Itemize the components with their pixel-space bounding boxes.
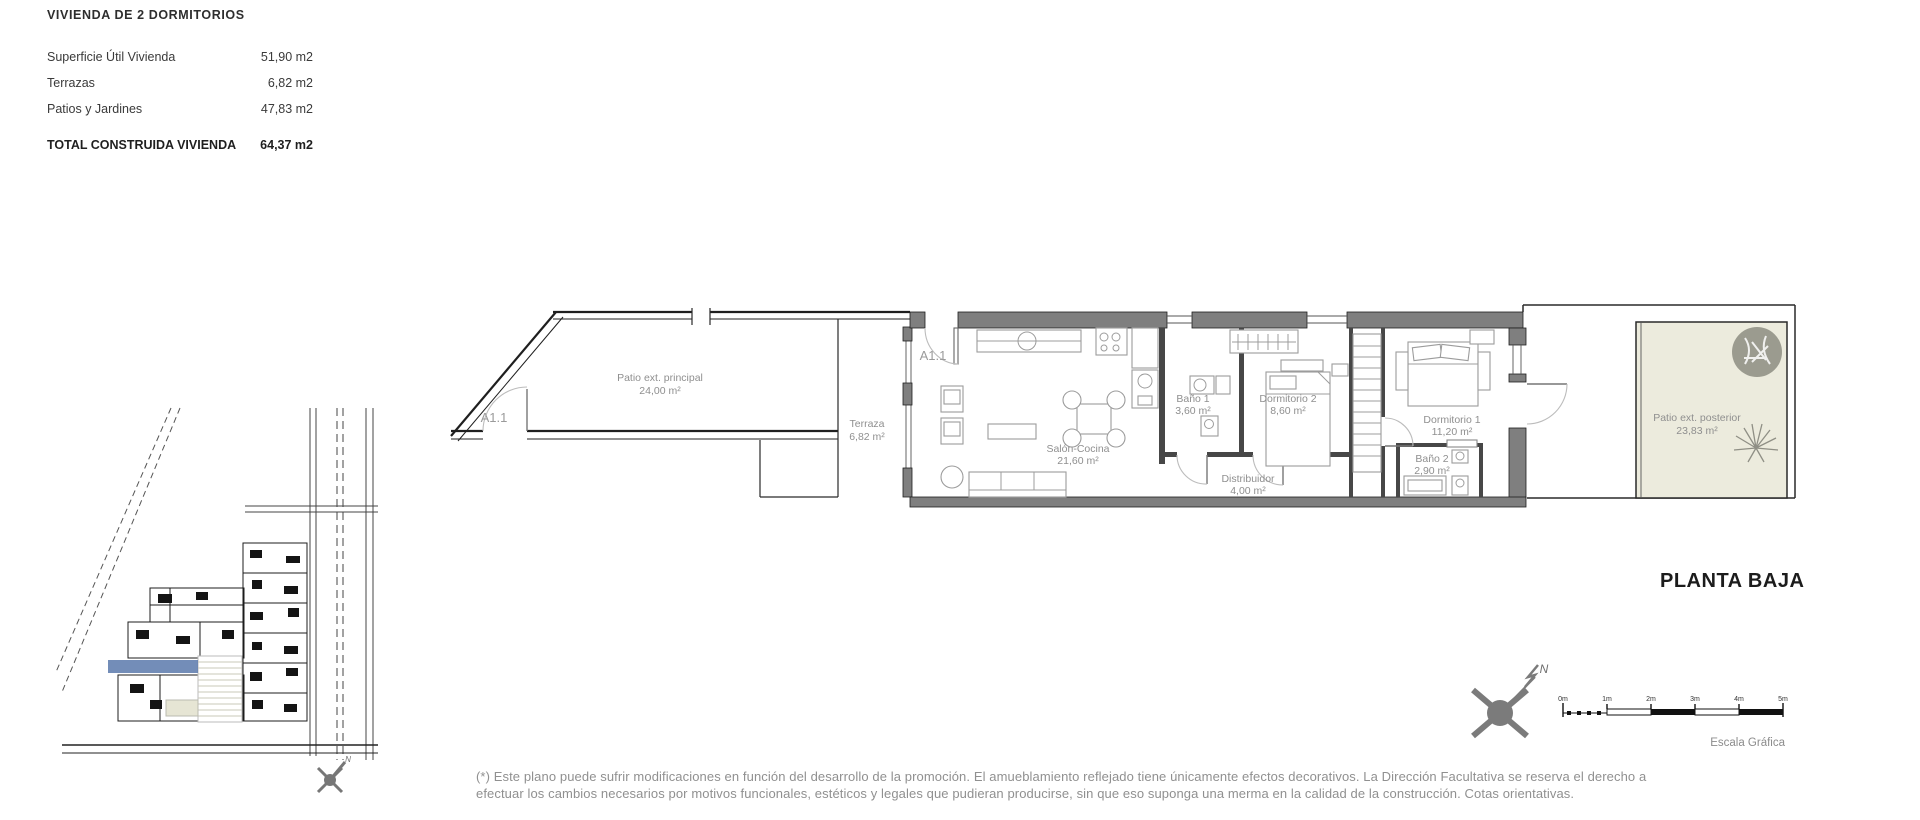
- svg-text:8,60 m²: 8,60 m²: [1270, 405, 1306, 417]
- svg-text:Patio ext. posterior: Patio ext. posterior: [1653, 412, 1741, 424]
- svg-text:4,00 m²: 4,00 m²: [1230, 485, 1266, 497]
- svg-text:Distribuidor: Distribuidor: [1221, 473, 1275, 485]
- svg-text:Terraza: Terraza: [849, 418, 884, 430]
- row-label: Patios y Jardines: [47, 102, 142, 116]
- kitchen-counter: [977, 330, 1081, 352]
- cooktop-icon: [1096, 328, 1127, 355]
- svg-text:3,60 m²: 3,60 m²: [1175, 405, 1211, 417]
- bedroom1-furniture: [1396, 330, 1494, 406]
- svg-text:3m: 3m: [1690, 696, 1700, 703]
- site-key-plan: N: [55, 405, 385, 820]
- room-label-patio-principal: Patio ext. principal 24,00 m²: [617, 372, 703, 397]
- row-value: 47,83 m2: [261, 102, 313, 116]
- unit-label-patio: A1.1: [481, 410, 508, 425]
- row-value: 51,90 m2: [261, 50, 313, 64]
- unit-label-entrance: A1.1: [920, 348, 947, 363]
- total-label: TOTAL CONSTRUIDA VIVIENDA: [47, 138, 236, 152]
- svg-text:Dormitorio 1: Dormitorio 1: [1423, 414, 1480, 426]
- kitchen-column: [1132, 328, 1158, 408]
- svg-text:0m: 0m: [1558, 696, 1568, 703]
- disclaimer-footnote: (*) Este plano puede sufrir modificacion…: [476, 768, 1776, 802]
- svg-text:Baño 1: Baño 1: [1176, 393, 1209, 405]
- tree-icon: [1732, 327, 1782, 377]
- wardrobe-icon: [1353, 334, 1381, 472]
- svg-text:1m: 1m: [1602, 696, 1612, 703]
- row-value: 6,82 m2: [268, 76, 313, 90]
- svg-text:2m: 2m: [1646, 696, 1656, 703]
- main-floor-plan: A1.1 A1.1: [360, 250, 1800, 520]
- terraza-walls: [838, 319, 912, 497]
- svg-text:Salón-Cocina: Salón-Cocina: [1046, 443, 1109, 455]
- patio-principal-walls: [451, 308, 910, 497]
- compass-north-label: N: [1540, 662, 1549, 676]
- dining-table: [1063, 391, 1125, 447]
- summary-title: VIVIENDA DE 2 DORMITORIOS: [47, 8, 313, 22]
- svg-text:23,83 m²: 23,83 m²: [1676, 425, 1718, 437]
- svg-text:21,60 m²: 21,60 m²: [1057, 455, 1099, 467]
- highlighted-unit: [108, 660, 198, 673]
- svg-text:Baño 2: Baño 2: [1415, 453, 1448, 465]
- scale-bar: 0m 1m 2m 3m 4m 5m: [1555, 692, 1795, 726]
- room-label-bano1: Baño 1 3,60 m²: [1175, 393, 1211, 417]
- svg-text:24,00 m²: 24,00 m²: [639, 385, 681, 397]
- patio-posterior: [1523, 305, 1795, 498]
- room-label-distribuidor: Distribuidor 4,00 m²: [1221, 473, 1275, 497]
- footnote-line1: (*) Este plano puede sufrir modificacion…: [476, 768, 1776, 785]
- svg-text:5m: 5m: [1778, 696, 1788, 703]
- svg-text:Dormitorio 2: Dormitorio 2: [1259, 393, 1316, 405]
- scale-caption: Escala Gráfica: [1620, 737, 1785, 749]
- row-label: Terrazas: [47, 76, 95, 90]
- plan-title: PLANTA BAJA: [1660, 570, 1804, 593]
- svg-text:N: N: [345, 755, 351, 764]
- svg-text:11,20 m²: 11,20 m²: [1432, 426, 1473, 438]
- room-label-dormitorio1: Dormitorio 1 11,20 m²: [1423, 414, 1480, 438]
- room-label-salon-cocina: Salón-Cocina 21,60 m²: [1046, 443, 1109, 467]
- footnote-line2: efectuar los cambios necesarios por moti…: [476, 785, 1776, 802]
- room-label-bano2: Baño 2 2,90 m²: [1414, 453, 1450, 477]
- area-summary-table: VIVIENDA DE 2 DORMITORIOS Superficie Úti…: [47, 8, 313, 158]
- svg-text:Patio ext. principal: Patio ext. principal: [617, 372, 703, 384]
- living-furniture: [941, 386, 1066, 497]
- north-compass-icon: N: [1445, 655, 1565, 775]
- svg-text:6,82 m²: 6,82 m²: [849, 431, 885, 443]
- site-north-arrow-icon: N: [318, 755, 351, 792]
- room-label-terraza: Terraza 6,82 m²: [849, 418, 885, 443]
- svg-text:2,90 m²: 2,90 m²: [1414, 465, 1450, 477]
- total-value: 64,37 m2: [260, 138, 313, 152]
- row-label: Superficie Útil Vivienda: [47, 50, 175, 64]
- svg-text:4m: 4m: [1734, 696, 1744, 703]
